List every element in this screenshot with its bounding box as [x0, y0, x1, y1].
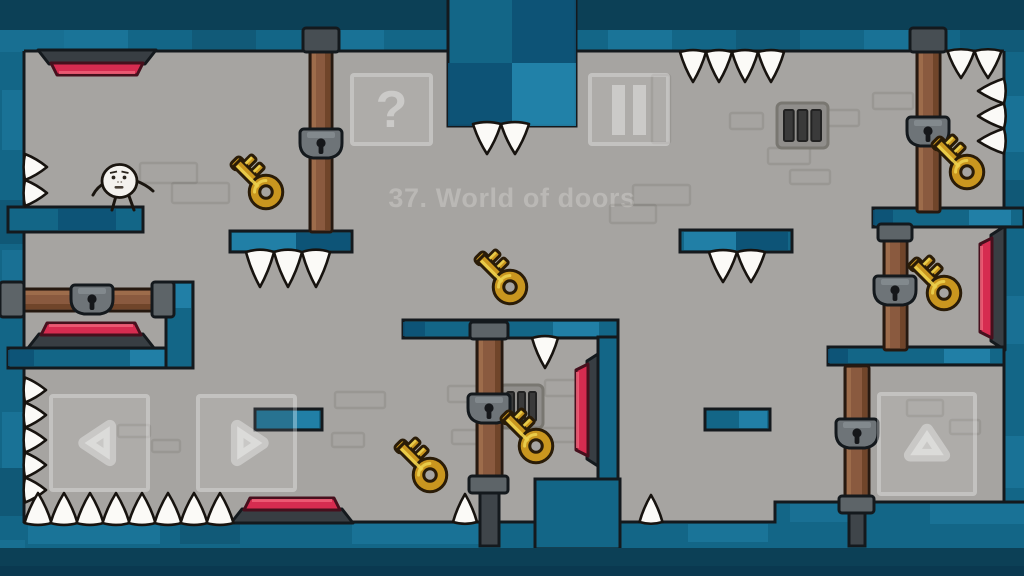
locked-door-1	[300, 28, 342, 232]
vent-grate-1	[777, 103, 828, 148]
move-left-button[interactable]	[49, 394, 150, 492]
game-scene	[0, 0, 1024, 576]
locked-door-6	[0, 282, 174, 317]
spike-group-6	[25, 493, 234, 525]
spike-group-7	[453, 494, 477, 524]
red-button-2	[28, 323, 154, 348]
key-6	[390, 432, 450, 492]
platform-5	[403, 320, 618, 338]
locked-door-3	[874, 224, 916, 350]
help-button[interactable]: ?	[350, 73, 433, 146]
pause-icon	[612, 85, 646, 135]
pause-button[interactable]	[588, 73, 670, 146]
hanging-block	[448, 0, 576, 126]
left-arrow-icon	[65, 408, 135, 478]
red-button-1	[38, 50, 156, 75]
spike-group-3	[978, 79, 1006, 154]
platform-3	[680, 230, 792, 252]
right-arrow-icon	[212, 408, 282, 478]
question-mark-icon: ?	[376, 84, 408, 136]
spike-group-2	[948, 49, 1002, 78]
spike-group-1	[680, 50, 784, 82]
platform-12	[535, 479, 620, 549]
spike-group-5	[24, 378, 46, 503]
game-screen: 37. World of doors ?	[0, 0, 1024, 576]
player-character	[93, 165, 153, 211]
up-arrow-icon	[892, 409, 962, 479]
floor-shadow-band	[0, 548, 1024, 576]
key-1	[226, 149, 286, 209]
spike-group-4	[24, 154, 47, 206]
red-button-5	[980, 226, 1005, 350]
spike-group-9	[246, 250, 330, 287]
key-5	[496, 403, 556, 463]
spike-group-12	[532, 336, 558, 368]
red-button-3	[231, 498, 353, 523]
spike-group-11	[473, 122, 529, 154]
key-2	[470, 244, 530, 304]
move-right-button[interactable]	[196, 394, 297, 492]
locked-door-2	[907, 28, 949, 212]
jump-button[interactable]	[877, 392, 977, 496]
platform-9	[705, 409, 770, 430]
spike-group-10	[709, 250, 765, 282]
platform-1	[8, 207, 143, 232]
platform-11	[598, 337, 618, 483]
platform-10	[828, 347, 1004, 365]
spike-group-8	[640, 495, 663, 524]
